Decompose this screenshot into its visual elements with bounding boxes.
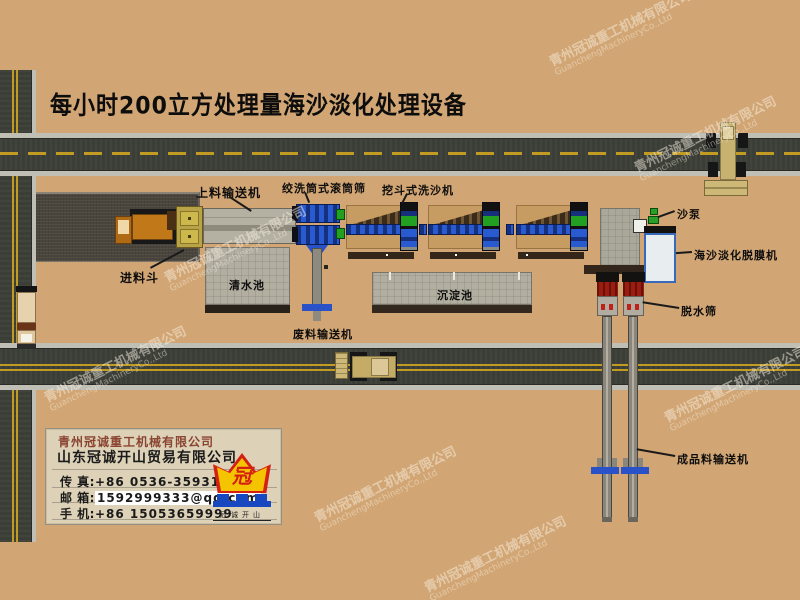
label-waste-conveyor: 废料输送机 <box>293 326 353 342</box>
washer-tower <box>400 202 418 251</box>
mobile-label: 手 机: <box>60 507 95 521</box>
screen-red-body <box>597 282 618 296</box>
mobile-row: 手 机:+86 15053659999 <box>60 505 233 522</box>
logo-caption: 冠诚开山 <box>213 510 271 520</box>
screen-red-dot <box>601 304 605 310</box>
label-sediment-pool: 沉淀池 <box>437 287 473 303</box>
watermark-cn: 青州冠诚重工机械有限公司 <box>312 444 459 526</box>
loader-blade <box>335 352 348 379</box>
drum-motor <box>336 209 345 220</box>
bucket-washer-unit <box>428 202 516 260</box>
logo-underline <box>213 520 271 521</box>
watermark-en: GuanchengMachineryCo.,Ltd <box>319 458 464 535</box>
truck-front <box>17 344 36 348</box>
sediment-pool-edge <box>372 305 532 313</box>
screen-red-dot <box>635 304 639 310</box>
watermark: 青州冠诚重工机械有限公司 GuanchengMachineryCo.,Ltd <box>423 515 574 600</box>
pool-tick <box>453 272 455 280</box>
loader-cab <box>371 358 389 376</box>
label-product-conveyor: 成品料输送机 <box>677 451 749 467</box>
washer-tower <box>570 202 588 251</box>
watermark-en: GuanchengMachineryCo.,Ltd <box>554 2 699 79</box>
dewatering-screen <box>596 272 619 318</box>
loader-wheel <box>736 162 746 177</box>
label-feed-hopper: 进料斗 <box>120 269 159 286</box>
waste-conveyor <box>312 248 322 306</box>
truck <box>16 286 37 348</box>
washer-base-bar <box>348 252 414 259</box>
dewatering-screen <box>622 272 645 318</box>
screen-cap <box>596 272 619 282</box>
pool-tick <box>518 272 520 280</box>
leader-sand-pump <box>658 211 675 219</box>
concrete-platform <box>600 208 640 266</box>
truck-trailer <box>17 292 36 323</box>
top-road-curb <box>0 170 800 176</box>
screen-red-body <box>623 282 644 296</box>
leader-product-conveyor <box>637 449 676 457</box>
logo-glyph: 冠 <box>213 466 271 486</box>
feed-hopper <box>176 206 203 248</box>
row-coupler <box>419 224 427 235</box>
watermark-cn: 青州冠诚重工机械有限公司 <box>547 0 694 70</box>
company-card: 青州冠诚重工机械有限公司 山东冠诚开山贸易有限公司 传 真:+86 0536-3… <box>45 428 282 525</box>
logo-pedestal-block <box>236 494 248 501</box>
drum-motor <box>336 228 345 239</box>
conveyor-endcap <box>602 517 612 522</box>
logo-pedestal-block <box>217 494 229 501</box>
conveyor-endcap <box>628 517 638 522</box>
base-bar-dot <box>526 254 528 256</box>
email-label: 邮 箱: <box>60 491 95 505</box>
waste-conveyor-crossbar <box>302 304 332 311</box>
screen-red-dot <box>609 304 613 310</box>
waste-conveyor-foot <box>313 311 321 321</box>
wheel-loader-bottom <box>335 350 399 384</box>
conveyor-stud <box>612 458 617 467</box>
label-clean-water-pool: 清水池 <box>229 277 265 293</box>
hopper-bolt <box>188 217 191 220</box>
company-logo: 冠 冠诚开山 <box>213 453 271 525</box>
conveyor-stud <box>623 458 628 467</box>
label-desalination-machine: 海沙淡化脱膜机 <box>694 247 778 263</box>
clean-water-pool-edge <box>205 305 290 313</box>
diagram-canvas: 每小时200立方处理量海沙淡化处理设备 上料输送机 绞洗筒式滚筒筛 挖斗式洗沙机… <box>0 0 800 600</box>
conveyor-foot-bar <box>621 467 649 474</box>
washer-base-bar <box>430 252 496 259</box>
page-title: 每小时200立方处理量海沙淡化处理设备 <box>50 86 467 121</box>
loader-bucket <box>704 180 748 196</box>
label-drum-washer: 绞洗筒式滚筒筛 <box>282 180 366 196</box>
watermark: 青州冠诚重工机械有限公司 GuanchengMachineryCo.,Ltd <box>548 0 699 79</box>
excavator <box>115 206 180 246</box>
leader-dewatering-screen <box>642 302 679 309</box>
watermark: 青州冠诚重工机械有限公司 GuanchengMachineryCo.,Ltd <box>313 445 464 535</box>
screen-cap <box>622 272 645 282</box>
company-name-2: 山东冠诚开山贸易有限公司 <box>57 447 237 467</box>
truck-windshield <box>21 334 32 342</box>
product-conveyor <box>628 316 638 522</box>
logo-pedestal-block <box>255 494 267 501</box>
logo-pedestal-bar <box>213 501 271 507</box>
ground-dot <box>324 265 328 269</box>
desalination-machine <box>644 233 676 283</box>
leader-desalination-machine <box>676 252 692 255</box>
bucket-washer-unit <box>516 202 604 260</box>
watermark-cn: 青州冠诚重工机械有限公司 <box>422 514 569 596</box>
base-bar-dot <box>455 254 457 256</box>
loader-wheel <box>708 162 718 177</box>
label-bucket-washer: 挖斗式洗沙机 <box>382 182 454 198</box>
pool-tick <box>389 272 391 280</box>
desalination-machine-top <box>644 226 676 233</box>
base-bar-dot <box>386 254 388 256</box>
truck-band <box>17 323 36 330</box>
excavator-window <box>118 220 129 234</box>
hopper-bolt <box>188 235 191 238</box>
washer-tower <box>482 202 500 251</box>
label-dewatering-screen: 脱水筛 <box>681 303 717 319</box>
conveyor-stud <box>597 458 602 467</box>
row-coupler <box>506 224 514 235</box>
conveyor-foot-bar <box>591 467 619 474</box>
fax-label: 传 真: <box>60 475 95 489</box>
conveyor-stud <box>638 458 643 467</box>
label-feed-conveyor: 上料输送机 <box>196 184 261 201</box>
fax-row: 传 真:+86 0536-3593111 <box>60 473 239 490</box>
label-sand-pump: 沙泵 <box>677 206 701 222</box>
product-conveyor <box>602 316 612 522</box>
screen-red-dot <box>627 304 631 310</box>
watermark-en: GuanchengMachineryCo.,Ltd <box>429 528 574 600</box>
bottom-road-curb <box>0 384 800 390</box>
sand-pump-body <box>650 208 658 215</box>
